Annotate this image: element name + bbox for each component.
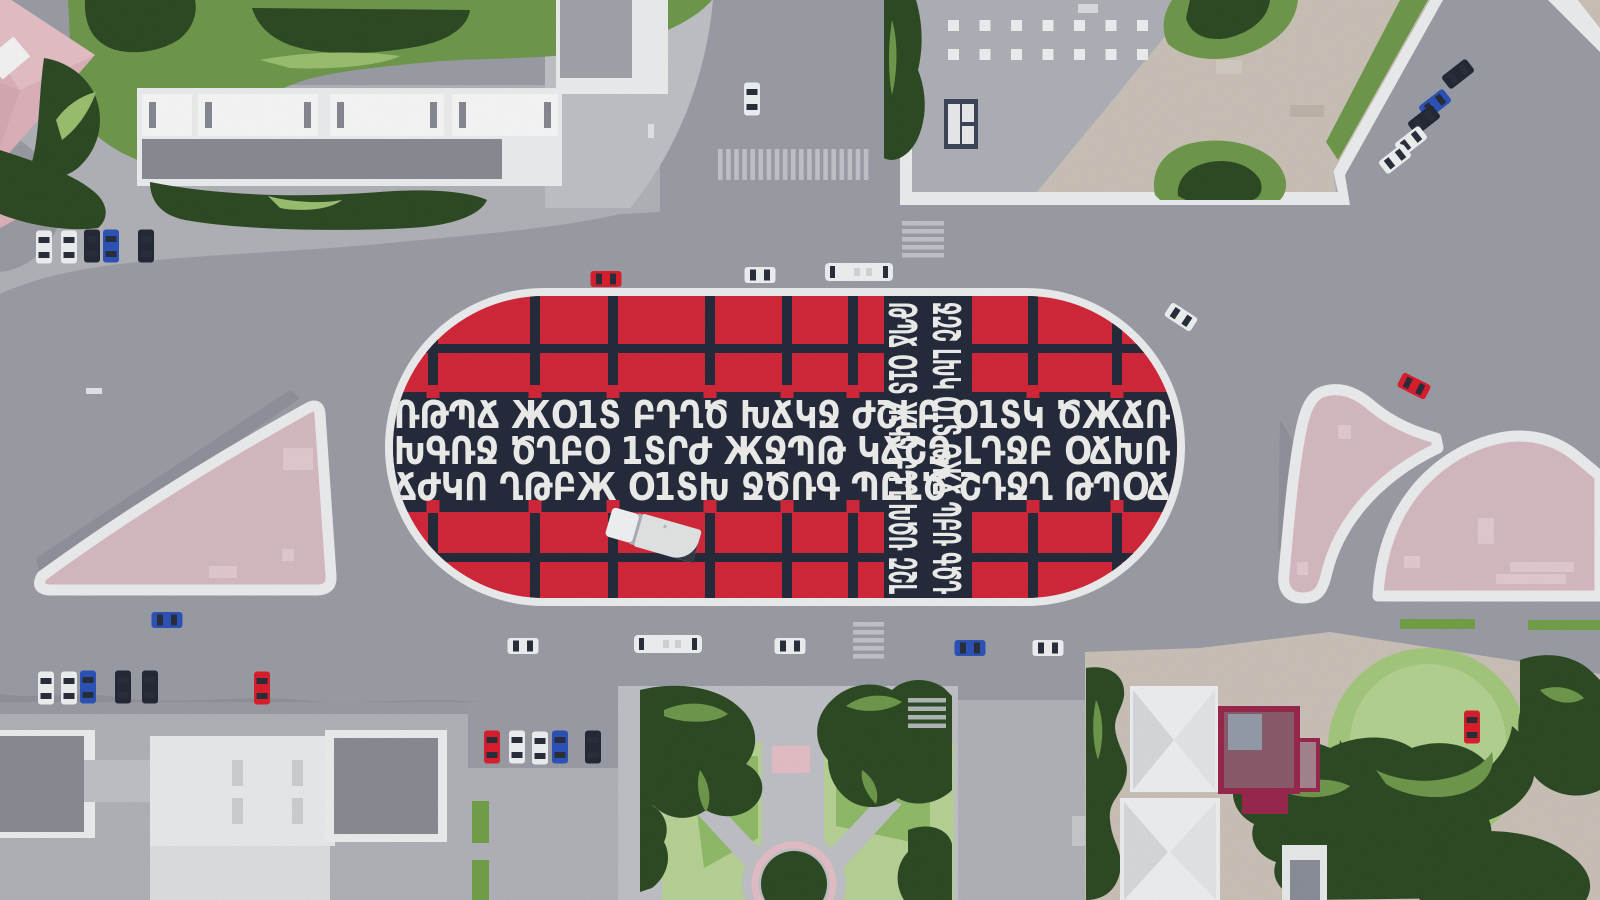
film-grain (0, 0, 1600, 900)
scene: ՌԹՊՃ ЖՕ1Տ ԲԴՂԾ ԽՃԿՋ ԺՇԼԲ Օ1ՏԿ ԾЖՃՌ ԽԳՌՋ … (0, 0, 1600, 900)
aerial-city-illustration: ՌԹՊՃ ЖՕ1Տ ԲԴՂԾ ԽՃԿՋ ԺՇԼԲ Օ1ՏԿ ԾЖՃՌ ԽԳՌՋ … (0, 0, 1600, 900)
